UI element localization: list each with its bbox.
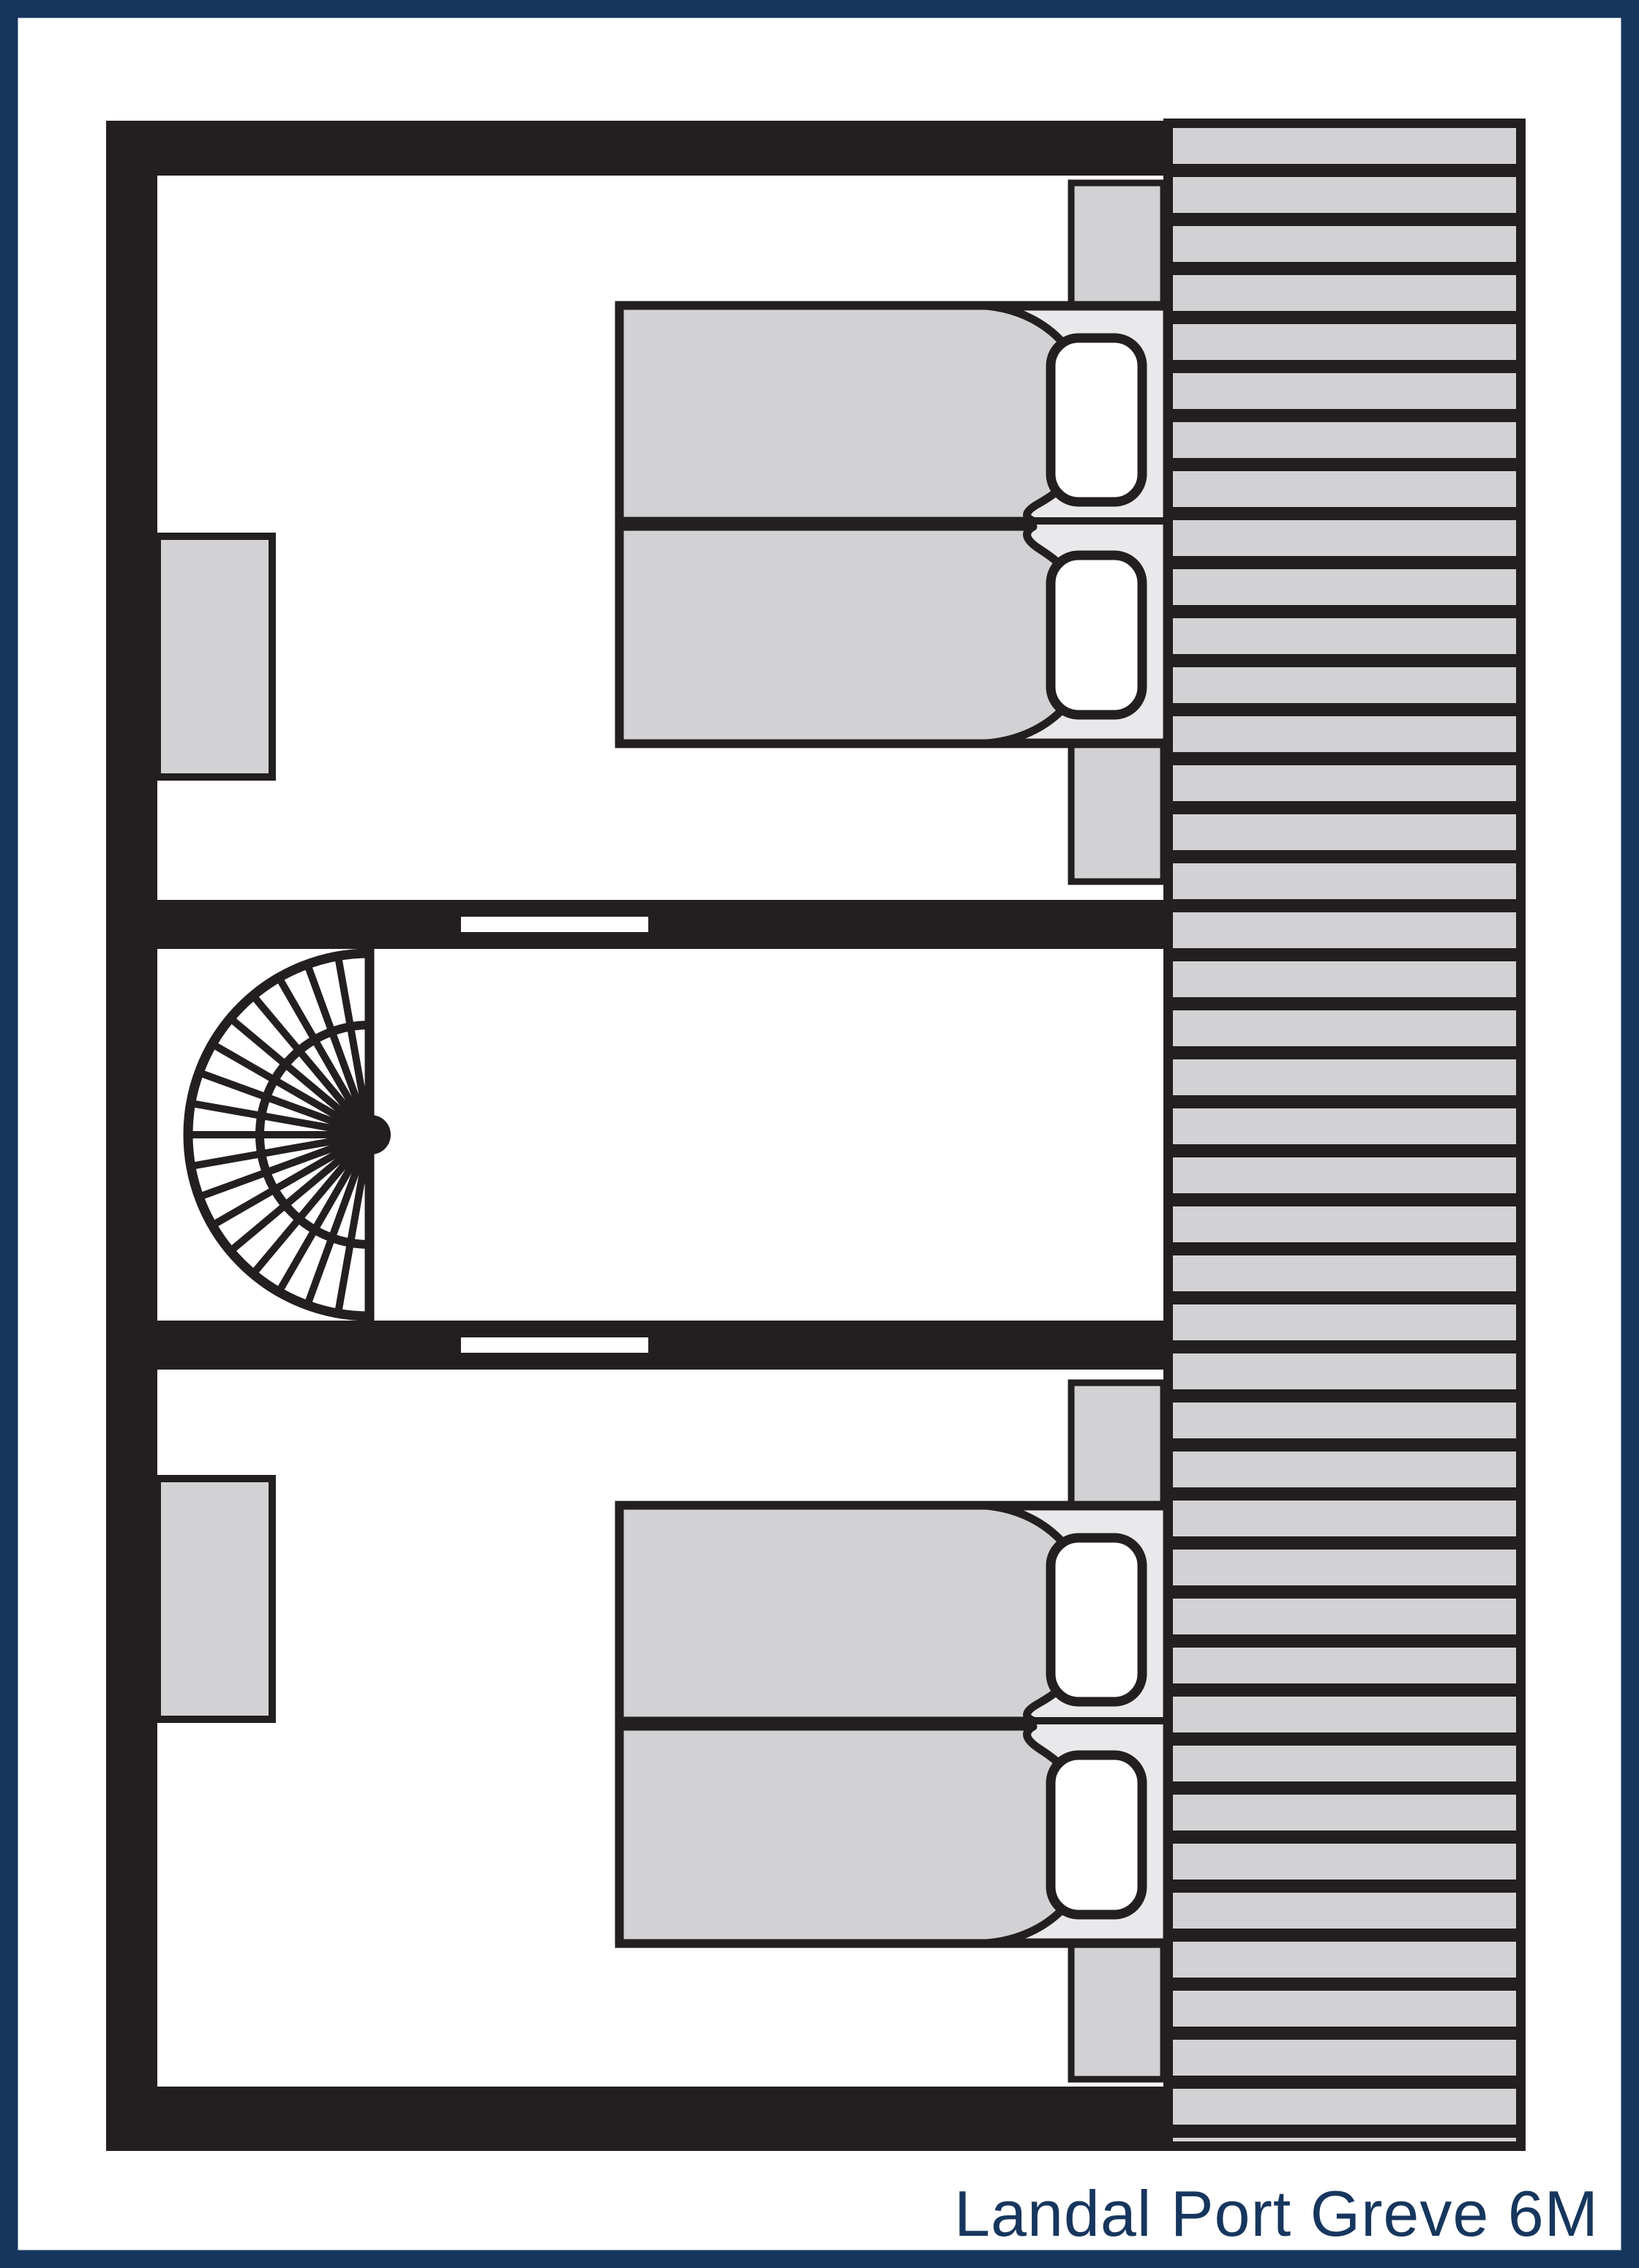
- pillow: [1051, 1755, 1142, 1915]
- double-bed: [620, 306, 1168, 743]
- nightstand: [1071, 743, 1163, 882]
- wall-landing-bottom: [157, 1321, 1166, 1370]
- wall-left: [106, 121, 157, 2151]
- door-opening-top: [461, 917, 648, 932]
- page: Landal Port Greve 6M: [0, 0, 1639, 2268]
- duvet: [620, 527, 1090, 743]
- double-bed: [620, 1506, 1168, 1943]
- duvet: [620, 1506, 1090, 1721]
- wall-bottom: [106, 2087, 1166, 2151]
- duvet: [620, 306, 1090, 521]
- duvet: [620, 1727, 1090, 1943]
- pillow: [1051, 338, 1142, 502]
- wardrobe: [157, 1479, 272, 1719]
- door-opening-bottom: [461, 1337, 648, 1353]
- wall-top: [106, 121, 1166, 176]
- floor-plan: Landal Port Greve 6M: [0, 0, 1639, 2268]
- pillow: [1051, 555, 1142, 715]
- roof-deck: [1163, 119, 1526, 2151]
- wardrobe: [157, 536, 272, 777]
- plan-title: Landal Port Greve 6M: [954, 2177, 1599, 2250]
- stair-newel-post: [351, 1115, 391, 1154]
- nightstand: [1071, 183, 1163, 306]
- nightstand: [1071, 1383, 1163, 1506]
- pillow: [1051, 1538, 1142, 1702]
- roof-deck-slats: [1173, 128, 1516, 2141]
- nightstand: [1071, 1943, 1163, 2079]
- wall-landing-top: [157, 900, 1166, 949]
